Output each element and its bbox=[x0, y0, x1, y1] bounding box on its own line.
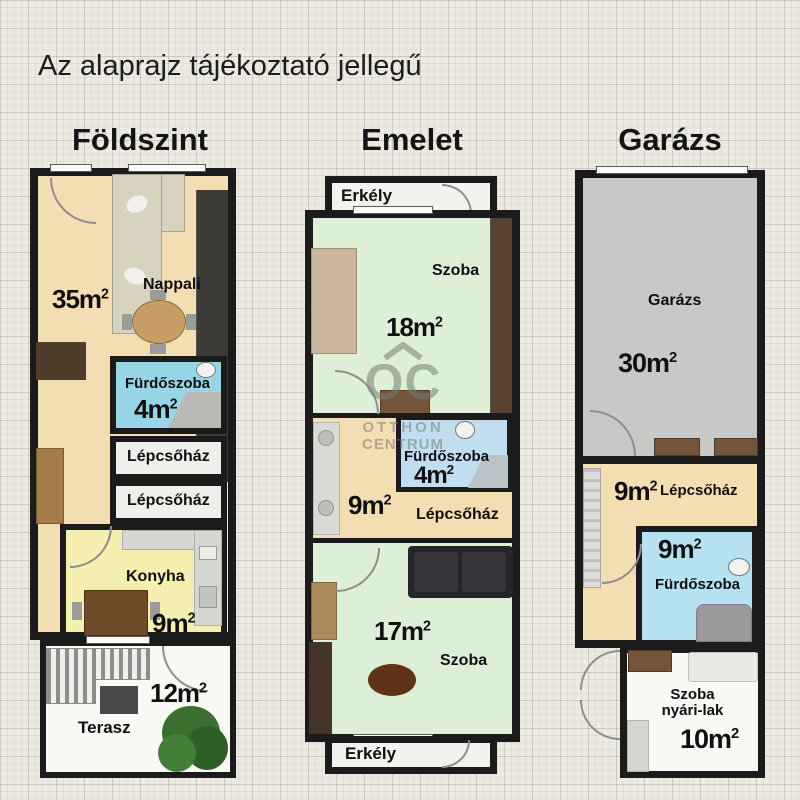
chair bbox=[186, 314, 196, 330]
wardrobe bbox=[309, 642, 332, 734]
watermark-line1: OTTHON bbox=[358, 419, 448, 436]
furdoszoba-label: Fürdőszoba bbox=[125, 375, 210, 392]
awning bbox=[46, 648, 96, 704]
garazs-area: 30m2 bbox=[618, 348, 677, 379]
furdoszoba-area: 4m2 bbox=[414, 462, 454, 490]
lepcsohaz-label: Lépcsőház bbox=[127, 492, 210, 510]
sofa-light bbox=[688, 652, 758, 682]
furdoszoba-area: 9m2 bbox=[658, 534, 702, 565]
window bbox=[86, 636, 150, 644]
bathtub bbox=[696, 604, 752, 642]
szoba-label-line1: Szoba bbox=[650, 686, 735, 703]
erkely-label: Erkély bbox=[341, 186, 392, 206]
dining-table-round bbox=[132, 300, 186, 344]
sink bbox=[199, 546, 217, 560]
rug-oval bbox=[368, 664, 416, 696]
szoba-label-line2: nyári-lak bbox=[650, 702, 735, 719]
washer bbox=[318, 430, 334, 446]
cabinet bbox=[36, 448, 64, 524]
watermark-initials: OC bbox=[358, 360, 448, 405]
terrace-table bbox=[100, 686, 138, 714]
table bbox=[628, 650, 672, 672]
lepcsohaz-label: Lépcsőház bbox=[660, 482, 738, 499]
floorplan-sheet: Az alaprajz tájékoztató jellegű Földszin… bbox=[0, 0, 800, 800]
erkely-label: Erkély bbox=[345, 744, 396, 764]
storage-box bbox=[714, 438, 758, 456]
watermark: OC OTTHON CENTRUM bbox=[358, 342, 448, 453]
watermark-line2: CENTRUM bbox=[358, 436, 448, 453]
storage-box bbox=[654, 438, 700, 456]
garage-door-window bbox=[596, 166, 748, 174]
heading-foldszint: Földszint bbox=[55, 122, 225, 158]
chair bbox=[122, 314, 132, 330]
bush bbox=[158, 734, 196, 772]
furdoszoba-label: Fürdőszoba bbox=[655, 576, 740, 593]
stairs bbox=[627, 720, 649, 772]
sofa-cushion bbox=[414, 552, 458, 592]
terasz-area: 12m2 bbox=[150, 678, 207, 709]
lepcsohaz-label: Lépcsőház bbox=[416, 506, 499, 524]
szoba-also-area: 17m2 bbox=[374, 616, 431, 647]
konyha-area: 9m2 bbox=[152, 608, 196, 639]
szoba-area: 10m2 bbox=[680, 724, 739, 755]
kitchen-table bbox=[84, 590, 148, 636]
nappali-area: 35m2 bbox=[52, 284, 109, 315]
chair bbox=[72, 602, 82, 620]
desk bbox=[36, 342, 86, 380]
disclaimer-title: Az alaprajz tájékoztató jellegű bbox=[38, 50, 422, 83]
wall bbox=[583, 456, 757, 464]
window bbox=[353, 206, 433, 214]
door-arc bbox=[580, 650, 620, 690]
furdoszoba-area: 4m2 bbox=[134, 394, 178, 425]
heading-garazs: Garázs bbox=[585, 122, 755, 158]
terasz-label: Terasz bbox=[78, 718, 131, 738]
window bbox=[50, 164, 92, 172]
lepcsohaz-area: 9m2 bbox=[614, 476, 658, 507]
stairs bbox=[583, 468, 601, 588]
szoba-label: Szoba bbox=[440, 652, 487, 670]
szoba-label: Szoba bbox=[432, 262, 479, 280]
konyha-label: Konyha bbox=[126, 568, 185, 586]
toilet bbox=[455, 421, 475, 439]
eloter-area: 9m2 bbox=[348, 490, 392, 521]
lepcsohaz-label: Lépcsőház bbox=[127, 448, 210, 466]
nappali-label: Nappali bbox=[143, 276, 201, 294]
garazs-label: Garázs bbox=[648, 292, 701, 310]
washer bbox=[318, 500, 334, 516]
window bbox=[128, 164, 206, 172]
chair bbox=[150, 344, 166, 354]
szoba-area: 18m2 bbox=[386, 312, 443, 343]
wardrobe bbox=[490, 218, 512, 414]
stove bbox=[199, 586, 217, 608]
sofa bbox=[311, 248, 357, 354]
kitchen-counter bbox=[194, 530, 222, 626]
door-arc bbox=[580, 700, 620, 740]
heading-emelet: Emelet bbox=[327, 122, 497, 158]
cabinet bbox=[311, 582, 337, 640]
sofa-cushion bbox=[462, 552, 506, 592]
toilet bbox=[728, 558, 750, 576]
